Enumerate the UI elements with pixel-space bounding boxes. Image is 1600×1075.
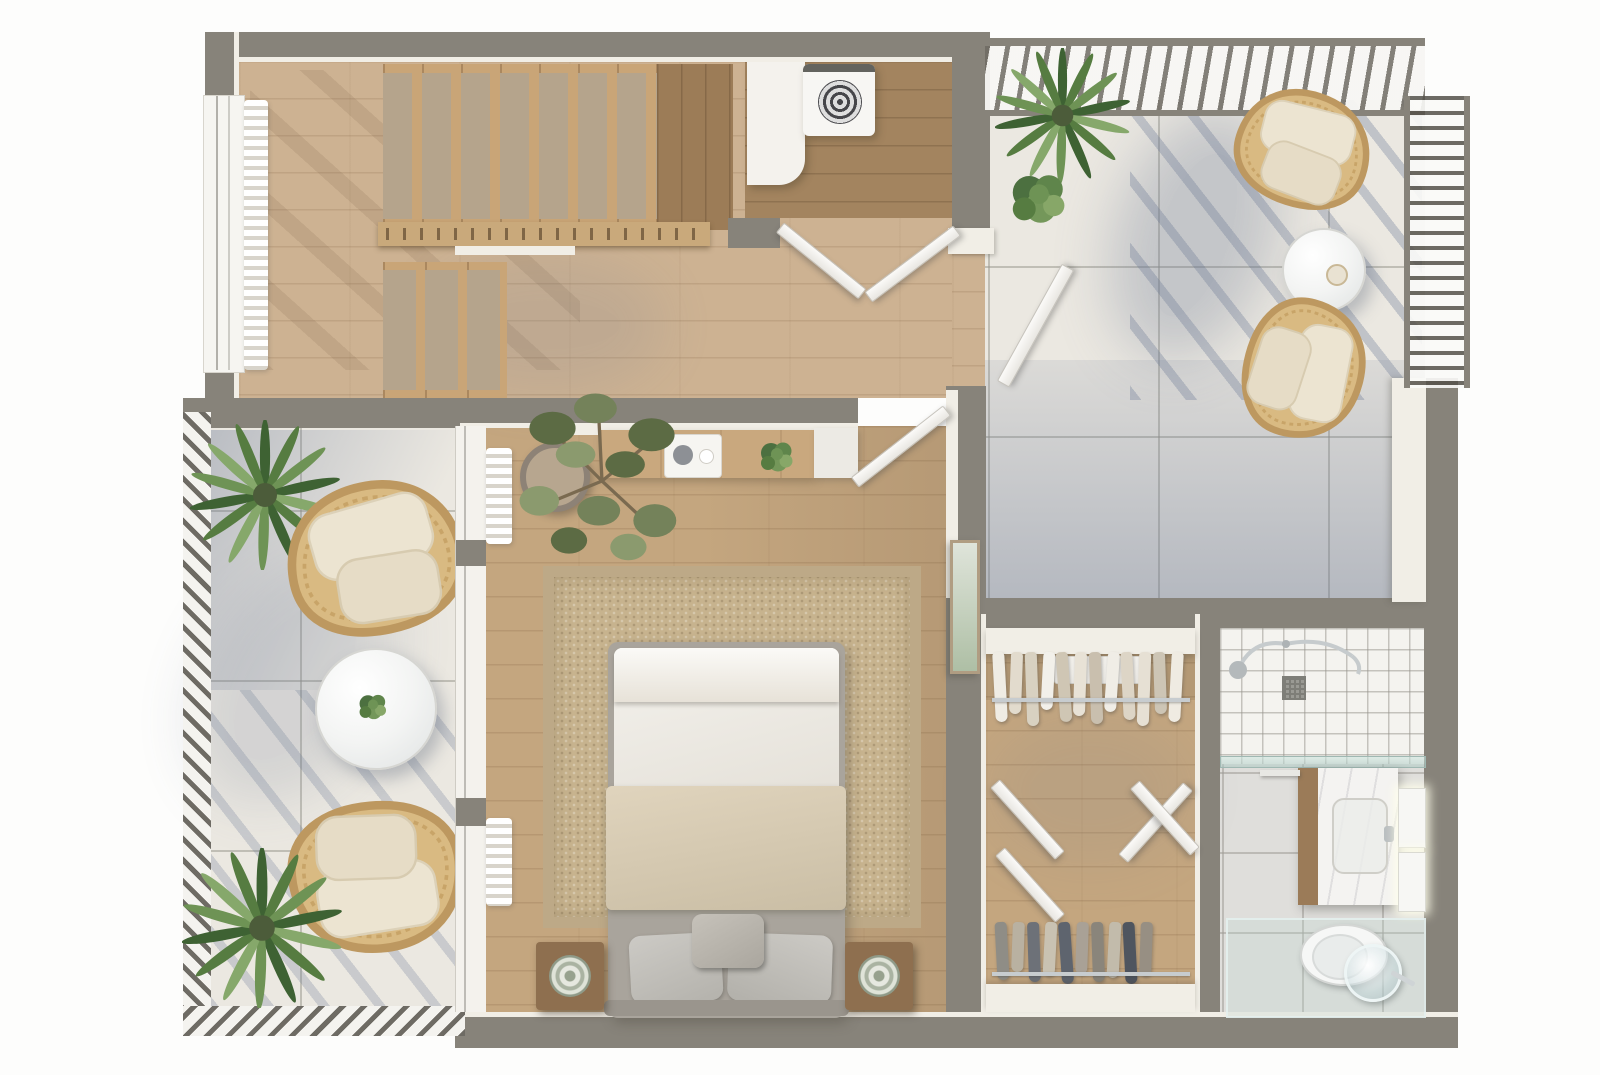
vanity-wood-side	[1298, 768, 1318, 905]
washing-machine-drum	[818, 80, 862, 124]
floor-plan	[0, 0, 1600, 1075]
balcony-palm-south	[182, 848, 342, 1008]
hanging-garment	[1056, 652, 1073, 723]
hanging-garment	[1107, 922, 1122, 979]
nightstand-left-lamp	[549, 955, 591, 997]
wall-top	[205, 32, 990, 62]
hanging-garment	[1137, 652, 1152, 726]
hanging-garment	[992, 652, 1008, 723]
closet-bottom-rail	[992, 972, 1190, 976]
stairs-upper-carpet-runner	[383, 73, 657, 219]
hanging-garment	[1011, 922, 1025, 972]
bed-duvet-fold	[614, 648, 839, 702]
hanging-garment	[1073, 652, 1087, 716]
hall-window-glazing-line2	[228, 96, 230, 370]
stairs-railing	[378, 222, 710, 246]
hanging-garment	[1139, 922, 1153, 976]
terrace-table-cup	[1326, 264, 1348, 286]
washing-machine	[803, 64, 875, 136]
hall-window-glazing-line	[216, 96, 218, 370]
bedroom-window-pier-upper	[456, 540, 486, 566]
closet-top-rail	[992, 698, 1190, 702]
bed-headboard	[604, 1000, 849, 1016]
balcony-railing-bottom	[183, 1006, 465, 1036]
stairs-upper-landing	[657, 64, 733, 230]
hanging-garment	[1104, 652, 1120, 713]
shower-glass-screen	[1220, 756, 1426, 768]
vanity-basin	[1332, 798, 1388, 874]
olive-tree	[502, 382, 702, 580]
hanging-garment	[1089, 652, 1104, 724]
wall-right-outer	[1424, 378, 1458, 1048]
washing-machine-control-panel	[803, 64, 875, 72]
hanging-garment	[1168, 652, 1184, 723]
hall-curtain	[244, 100, 268, 370]
bed-throw-blanket	[606, 786, 846, 910]
led-mirror-upper	[1398, 788, 1426, 848]
closet-bottom-shelf	[986, 984, 1195, 1012]
stairs-railing-balusters	[386, 228, 702, 240]
leaning-artwork	[950, 540, 980, 674]
balcony-chair-north	[265, 447, 485, 669]
hanging-garment	[1153, 652, 1167, 714]
hall-window	[203, 95, 245, 373]
shower-fixtures	[1224, 630, 1394, 685]
desk-plant	[752, 432, 802, 482]
wall-laundry-bottom-stub	[728, 218, 780, 248]
vanity	[1298, 768, 1398, 905]
towel-rail	[1260, 770, 1300, 776]
stairs-lower-flight	[383, 262, 507, 398]
hanging-garment	[1025, 652, 1040, 726]
laundry-counter	[747, 61, 805, 185]
hanging-garment	[1009, 652, 1023, 714]
stairs-landing-edge	[455, 246, 575, 255]
bedroom-curtain-lower	[486, 818, 512, 906]
bedroom-window-pier-lower	[456, 798, 486, 826]
hall-terrace-doorway-floor	[952, 254, 988, 386]
stairs-lower-carpet-runner	[383, 270, 507, 390]
terrace-shrub	[998, 158, 1080, 240]
hanging-garment	[1120, 652, 1136, 721]
vanity-faucet	[1384, 826, 1394, 842]
stairs-upper-flight	[383, 64, 657, 228]
bedroom-window-glazing-line	[464, 426, 466, 1012]
bedroom-window-wall	[455, 426, 486, 1012]
wall-terrace-right-inner-face	[1392, 378, 1426, 602]
led-mirror-lower	[1398, 852, 1426, 912]
hanging-garment	[1043, 922, 1058, 977]
desk-white-cabinet	[814, 428, 858, 478]
wall-closet-bathroom-divider	[1195, 614, 1220, 1012]
balcony-table-plant	[352, 686, 394, 728]
closet-top-shelf	[986, 628, 1195, 654]
nightstand-right-lamp	[858, 955, 900, 997]
nightstand-left	[536, 942, 604, 1010]
hanging-garment	[1075, 922, 1089, 974]
nightstand-right	[845, 942, 913, 1010]
terrace-railing-right	[1404, 96, 1470, 388]
bed-accent-pillow	[692, 914, 764, 968]
closet-bottom-rail-clothes	[996, 922, 1188, 988]
